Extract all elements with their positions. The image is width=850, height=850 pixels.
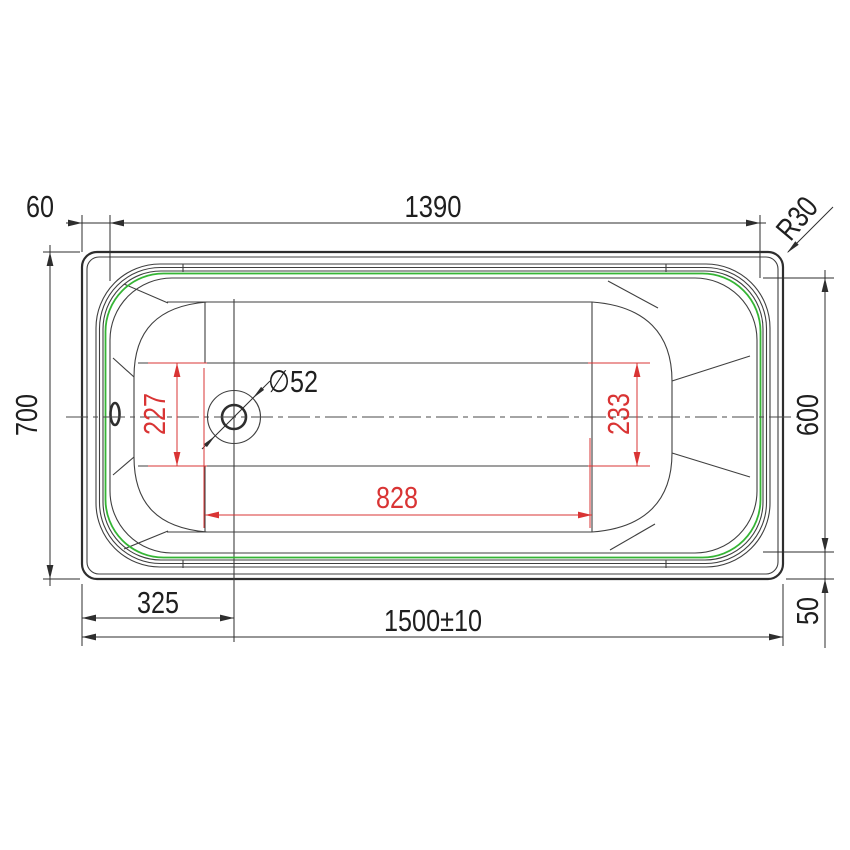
label-side-rim-offset: 50	[790, 597, 825, 625]
arrowhead	[110, 220, 124, 227]
rim-curl-line	[100, 268, 767, 564]
label-drain-diameter: ∅52	[268, 364, 318, 399]
arrowhead	[82, 634, 96, 641]
label-left-rim-offset: 60	[26, 189, 54, 224]
arrowhead-red	[174, 363, 181, 377]
arrowhead-red	[634, 452, 641, 466]
arrowhead	[822, 278, 829, 292]
black-dimension-labels: 60 1390 R30 700 600 50 325 1500±10 ∅52	[9, 189, 825, 638]
floor-facet-lines	[138, 363, 592, 466]
label-rim-opening-width: 600	[790, 394, 825, 436]
label-floor-flat-length: 828	[376, 480, 418, 515]
arrowhead-drain	[204, 436, 215, 447]
arrowhead	[769, 634, 783, 641]
arrowhead-red	[634, 363, 641, 377]
overflow-hole	[111, 403, 120, 425]
label-drain-offset: 325	[137, 585, 179, 620]
arrowhead-drain	[253, 387, 264, 398]
tub-outer-shell	[82, 252, 783, 579]
tub-structure-lines	[87, 257, 778, 642]
arrowhead	[47, 565, 54, 579]
arrowhead	[822, 538, 829, 552]
label-overall-length: 1500±10	[384, 603, 482, 638]
rim-curl-line	[96, 264, 770, 567]
rim-curl-line	[103, 271, 763, 560]
arrowhead	[220, 615, 234, 622]
bathtub-top-view-drawing: 60 1390 R30 700 600 50 325 1500±10 ∅52 2…	[0, 0, 850, 850]
drawing-canvas: 60 1390 R30 700 600 50 325 1500±10 ∅52 2…	[0, 0, 850, 850]
dim-line-700	[43, 245, 80, 586]
label-overall-width: 700	[9, 394, 44, 436]
label-corner-radius: R30	[769, 190, 825, 247]
arrowhead-red	[174, 452, 181, 466]
arrowhead-red	[205, 512, 219, 519]
rim-step-ticks	[183, 264, 666, 568]
arrowhead	[68, 220, 82, 227]
arrowhead	[746, 220, 760, 227]
label-floor-width-drain-end: 227	[137, 393, 172, 435]
arrowhead	[82, 615, 96, 622]
red-dimension-labels: 227 233 828	[137, 393, 636, 515]
arrowhead	[47, 252, 54, 266]
label-floor-width-foot-end: 233	[601, 393, 636, 435]
label-rim-opening-length: 1390	[405, 189, 462, 224]
arrowhead	[822, 579, 829, 593]
tub-outer-edge	[82, 252, 783, 579]
